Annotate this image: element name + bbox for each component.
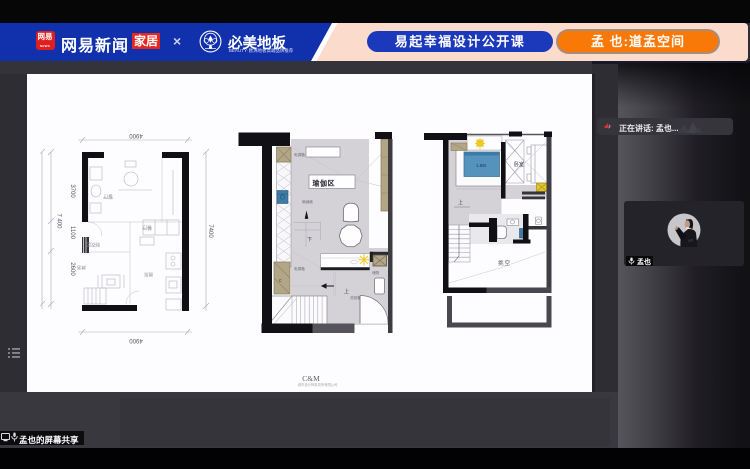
svg-text:下: 下 [307,237,312,243]
svg-text:电源箱: 电源箱 [294,152,305,157]
svg-text:7400: 7400 [207,224,213,238]
svg-text:3700: 3700 [69,184,75,198]
svg-text:储物: 储物 [372,270,380,275]
svg-text:1.8M: 1.8M [476,163,486,168]
svg-text:瑜伽区: 瑜伽区 [313,179,336,188]
svg-text:4900: 4900 [129,132,143,138]
svg-text:1100: 1100 [69,226,75,240]
svg-text:2600: 2600 [69,262,75,276]
svg-text:淋浴: 淋浴 [77,264,86,271]
svg-text:瑜伽墙: 瑜伽墙 [302,199,313,204]
svg-text:制衣区: 制衣区 [86,241,100,248]
svg-text:上: 上 [344,288,349,295]
svg-text:卧室: 卧室 [514,161,524,168]
svg-text:上: 上 [458,199,463,206]
svg-text:电源箱: 电源箱 [294,266,305,271]
svg-text:餐厅: 餐厅 [142,224,152,231]
svg-text:洗烘套: 洗烘套 [350,295,361,300]
svg-text:厨房: 厨房 [144,271,153,278]
svg-text:挑空: 挑空 [498,259,511,267]
svg-text:7 400: 7 400 [56,213,62,229]
svg-text:4900: 4900 [129,337,143,343]
svg-text:客厅: 客厅 [103,193,113,200]
